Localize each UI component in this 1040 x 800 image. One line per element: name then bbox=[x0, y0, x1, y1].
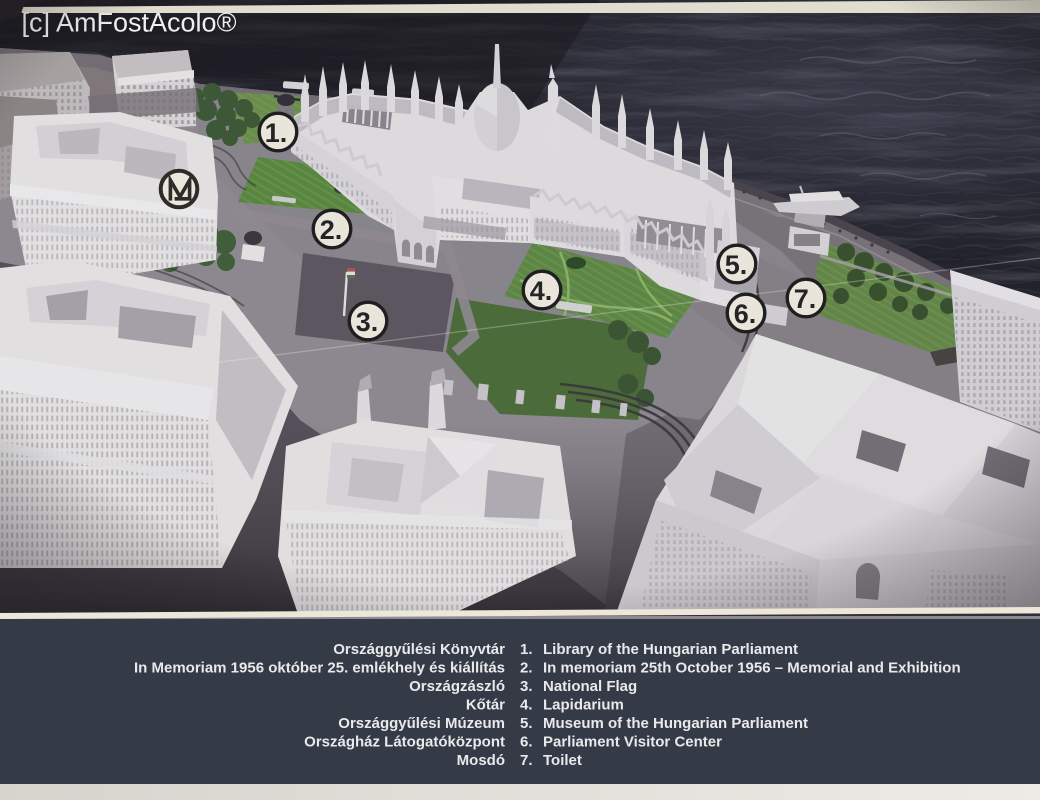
svg-text:3.: 3. bbox=[520, 678, 533, 695]
svg-text:In Memoriam 1956 október 25. e: In Memoriam 1956 október 25. emlékhely é… bbox=[134, 660, 505, 677]
svg-text:Mosdó: Mosdó bbox=[457, 752, 505, 769]
svg-text:Országház Látogatóközpont: Országház Látogatóközpont bbox=[304, 734, 505, 751]
svg-text:Toilet: Toilet bbox=[543, 752, 582, 769]
svg-text:Kőtár: Kőtár bbox=[466, 697, 505, 714]
svg-text:Lapidarium: Lapidarium bbox=[543, 697, 624, 714]
svg-text:Museum of the Hungarian Parlia: Museum of the Hungarian Parliament bbox=[543, 715, 808, 732]
svg-text:Library of the Hungarian Parli: Library of the Hungarian Parliament bbox=[543, 641, 798, 658]
svg-text:1.: 1. bbox=[520, 641, 533, 658]
svg-text:Országzászló: Országzászló bbox=[409, 678, 505, 695]
svg-text:Országgyűlési Múzeum: Országgyűlési Múzeum bbox=[338, 715, 505, 732]
svg-text:In memoriam 25th October 1956: In memoriam 25th October 1956 – Memorial… bbox=[543, 660, 961, 677]
svg-text:National Flag: National Flag bbox=[543, 678, 637, 695]
svg-text:2.: 2. bbox=[520, 660, 533, 677]
svg-text:6.: 6. bbox=[520, 734, 533, 751]
svg-text:4.: 4. bbox=[520, 697, 533, 714]
svg-text:Országgyűlési Könyvtár: Országgyűlési Könyvtár bbox=[333, 641, 505, 658]
svg-text:7.: 7. bbox=[520, 752, 533, 769]
svg-text:5.: 5. bbox=[520, 715, 533, 732]
svg-text:Parliament Visitor Center: Parliament Visitor Center bbox=[543, 734, 722, 751]
